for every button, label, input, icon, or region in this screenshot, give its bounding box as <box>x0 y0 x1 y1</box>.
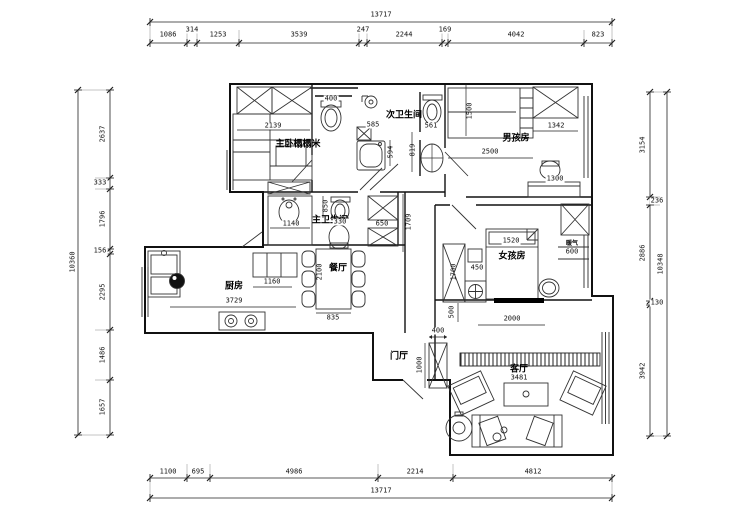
dim-right-3: 2886 <box>640 245 647 262</box>
sideboard <box>253 253 297 277</box>
dim-bottom-2: 695 <box>191 469 206 476</box>
dimension-lines <box>78 22 667 498</box>
coffee-table <box>504 383 548 406</box>
chair <box>302 291 315 307</box>
second-bath-fixtures <box>321 95 443 172</box>
dim-right-2: 236 <box>650 198 665 205</box>
dim-right-5: 3942 <box>640 363 647 380</box>
dim-right-total: 10348 <box>658 253 665 274</box>
dim-bottom-1: 1100 <box>159 469 178 476</box>
dim-girls-wardrobe: 1700 <box>451 264 458 281</box>
room-label-girls-room: 女孩房 <box>498 253 525 262</box>
dim-boys-wardrobe: 1342 <box>547 123 566 130</box>
girls-room-furniture <box>443 204 589 325</box>
dim-bath2-c: 819 <box>410 144 417 157</box>
dim-bottom-total: 13717 <box>369 488 392 495</box>
chair <box>302 251 315 267</box>
dim-top-4: 3539 <box>290 32 309 39</box>
dimension-ticks <box>74 18 671 502</box>
floor-plan-canvas: 13717 1086 314 1253 3539 247 2244 169 40… <box>0 0 740 518</box>
room-label-dining: 餐厅 <box>329 265 347 274</box>
tv-wall <box>460 353 600 366</box>
dim-top-3: 1253 <box>209 32 228 39</box>
dim-left-6: 1486 <box>100 347 107 364</box>
dim-girls-bed: 1520 <box>502 238 521 245</box>
stool <box>170 274 185 289</box>
dim-right-4: 130 <box>650 300 665 307</box>
dim-bottom-5: 4812 <box>524 469 543 476</box>
dim-bath2-b: 594 <box>388 146 395 159</box>
dim-left-3: 1796 <box>100 211 107 228</box>
dim-girls-off: 500 <box>449 306 456 319</box>
dim-top-7: 169 <box>438 27 453 34</box>
dim-right-1: 3154 <box>640 137 647 154</box>
dim-bath1-cabinet: 650 <box>375 221 390 228</box>
dim-left-total: 10360 <box>70 251 77 272</box>
dim-bath1-depth: 1709 <box>406 214 413 231</box>
room-label-boys-room: 男孩房 <box>502 135 529 144</box>
dim-bottom-4: 2214 <box>406 469 425 476</box>
armchair <box>560 371 606 415</box>
chair <box>352 271 365 287</box>
dim-bath1-sink: 1140 <box>282 221 301 228</box>
dim-bath2-a: 585 <box>366 122 381 129</box>
dim-bath1-b: 330 <box>333 219 348 226</box>
dim-left-2: 333 <box>93 180 108 187</box>
corner-sink <box>365 96 377 108</box>
dim-dining-table-w: 835 <box>326 315 341 322</box>
dim-top-total: 13717 <box>369 12 392 19</box>
room-label-radiator: 暖气 <box>566 241 578 247</box>
window-bands <box>142 96 613 424</box>
dim-bath2-toilet: 400 <box>324 96 339 103</box>
dim-boys-bed-w: 1500 <box>467 103 474 120</box>
window-sill <box>494 298 544 303</box>
toilet <box>423 95 442 100</box>
dim-left-1: 2637 <box>100 126 107 143</box>
dim-left-4: 156 <box>93 248 108 255</box>
nightstand <box>468 249 482 262</box>
dim-kitchen-len: 3729 <box>225 298 244 305</box>
dim-girls-window: 2000 <box>503 316 522 323</box>
chair <box>302 271 315 287</box>
dim-top-5: 247 <box>356 27 371 34</box>
dim-top-6: 2244 <box>395 32 414 39</box>
room-label-entry: 门厅 <box>390 353 408 362</box>
dim-left-7: 1657 <box>100 399 107 416</box>
dim-bath1-a: 850 <box>323 200 330 213</box>
stove <box>219 312 265 330</box>
room-label-kitchen: 厨房 <box>225 283 243 292</box>
dim-top-1: 1086 <box>159 32 178 39</box>
dim-bottom-3: 4986 <box>285 469 304 476</box>
desk <box>528 182 580 197</box>
dim-left-5: 2295 <box>100 284 107 301</box>
outer-walls <box>145 84 613 455</box>
floorplan-drawing <box>0 0 740 518</box>
dim-entry-cab-l: 1000 <box>417 357 424 374</box>
dim-girls-gap: 450 <box>470 265 485 272</box>
dim-girls-radiator: 600 <box>565 249 580 256</box>
dim-entry-cab-w: 400 <box>431 328 446 335</box>
dim-top-9: 823 <box>591 32 606 39</box>
door-leaves <box>242 152 476 399</box>
dimension-slashes <box>75 19 670 501</box>
dim-dining-table-l: 2100 <box>317 264 324 281</box>
dim-top-2: 314 <box>185 27 200 34</box>
entry-door-gap <box>403 377 427 383</box>
toilet <box>331 197 350 202</box>
dim-kitchen-counter: 1160 <box>263 279 282 286</box>
cushion <box>526 416 553 445</box>
room-label-second-bath: 次卫生间 <box>386 112 422 121</box>
dim-living-width: 3481 <box>510 375 529 382</box>
armchair <box>448 371 494 415</box>
room-label-master-bedroom: 主卧榻榻米 <box>275 141 320 150</box>
chair <box>352 291 365 307</box>
dim-boys-desk: 1300 <box>546 176 565 183</box>
dim-bath2-d: 561 <box>424 123 439 130</box>
cushion <box>479 416 506 445</box>
dim-top-8: 4042 <box>507 32 526 39</box>
kitchen-fixtures <box>148 251 296 331</box>
dimension-extension-lines <box>74 18 671 502</box>
dim-master-bed: 2139 <box>264 123 283 130</box>
dim-boys-bed-l: 2500 <box>481 149 500 156</box>
chair <box>352 251 365 267</box>
